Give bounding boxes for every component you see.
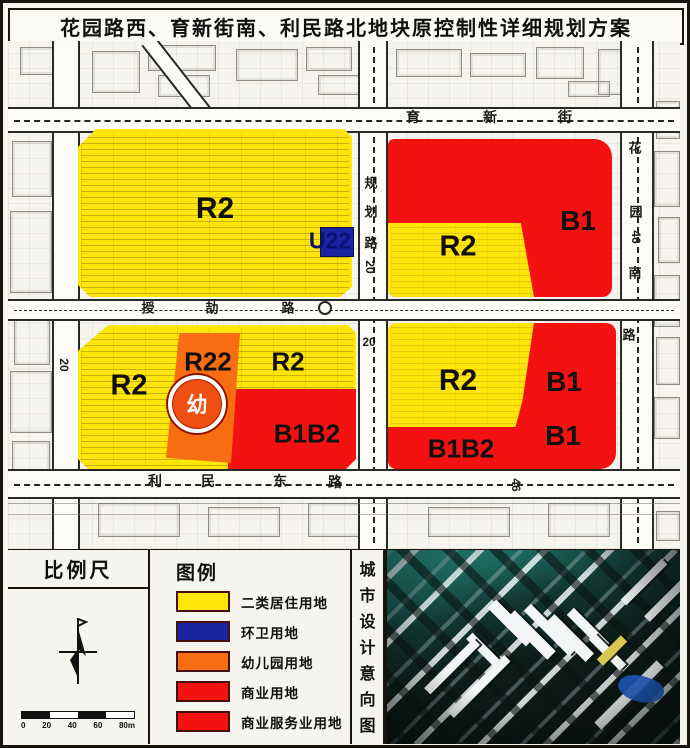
sidewalk-line (8, 514, 680, 515)
legend-swatch-commercial-service (176, 711, 230, 732)
sketch-building (548, 503, 610, 537)
sketch-building (12, 141, 52, 197)
sketch-building (656, 511, 680, 541)
sketch-building (654, 397, 680, 439)
scale-tick: 60 (93, 721, 102, 730)
caption-char: 向 (359, 688, 375, 714)
sketch-building (306, 47, 352, 71)
legend-item: 二类居住用地 (176, 591, 350, 612)
road-char: 路 (364, 233, 377, 252)
road-char: 规 (364, 173, 377, 192)
parcel-label-r2-nw: R2 (196, 192, 234, 226)
legend-label: 商业用地 (241, 682, 299, 702)
legend-swatch-commercial (176, 681, 230, 702)
legend-item: 商业服务业用地 (176, 711, 350, 732)
legend-title: 图例 (176, 558, 350, 585)
sketch-building (236, 49, 298, 81)
parcel-label-r22: R22 (184, 347, 232, 378)
road-width-label: 20 (362, 335, 375, 349)
road-char: 路 (328, 472, 342, 492)
road-char: 路 (281, 298, 294, 317)
parcel-label-r2-ne: R2 (439, 231, 476, 264)
sketch-building (10, 211, 52, 293)
legend-label: 二类居住用地 (241, 592, 328, 612)
plan-map: 幼 R2 U22 R2 B1 R2 R22 R2 B1B2 R2 B1 B1 B… (8, 41, 680, 551)
parcel-label-r2-se: R2 (439, 364, 477, 398)
limin-east-road (8, 469, 680, 499)
caption-char: 城 (359, 558, 375, 584)
road-char: 新 (483, 107, 497, 127)
road-char: 南 (628, 263, 641, 282)
sidewalk-line (8, 503, 680, 504)
scale-tick: 20 (42, 721, 51, 730)
legend-label: 商业服务业用地 (241, 712, 343, 732)
parcel-label-u22: U22 (309, 228, 351, 255)
plan-sheet: 花园路西、育新街南、利民路北地块原控制性详细规划方案 (0, 0, 690, 748)
sketch-building (656, 337, 680, 385)
legend-item: 商业用地 (176, 681, 350, 702)
caption-char: 计 (359, 636, 375, 662)
road-char: 育 (406, 107, 420, 127)
kindergarten-badge: 幼 (168, 375, 226, 433)
scale-panel-header: 比例尺 (8, 550, 148, 589)
road-char: 花 (628, 138, 641, 157)
road-width-label: 46 (509, 478, 523, 491)
page-title: 花园路西、育新街南、利民路北地块原控制性详细规划方案 (60, 12, 632, 41)
road-centerline (14, 120, 674, 122)
sketch-building (654, 151, 680, 207)
road-char: 路 (622, 325, 635, 344)
road-char: 劼 (205, 298, 218, 317)
road-char: 授 (141, 298, 154, 317)
caption-char: 意 (359, 662, 375, 688)
scale-tick: 80m (119, 721, 135, 730)
sketch-building (536, 47, 584, 79)
sketch-building (10, 371, 52, 433)
legend-swatch-kindergarten (176, 651, 230, 672)
scale-bar-ticks: 0 20 40 60 80m (21, 721, 135, 730)
scale-panel-title: 比例尺 (44, 554, 113, 583)
parcel-label-b1-ne: B1 (560, 205, 596, 237)
sheet-title-bar: 花园路西、育新街南、利民路北地块原控制性详细规划方案 (8, 8, 684, 45)
caption-char: 图 (359, 714, 375, 740)
scale-tick: 40 (68, 721, 77, 730)
road-width-label: 20 (57, 358, 71, 371)
parcel-label-b1-se-top: B1 (546, 366, 582, 398)
parcel-label-b1b2-se: B1B2 (428, 434, 494, 465)
road-char: 民 (201, 471, 215, 491)
road-char: 街 (558, 107, 572, 127)
road-char: 东 (273, 471, 287, 491)
parcel-label-b1-se-bottom: B1 (545, 420, 581, 452)
scale-bar: 0 20 40 60 80m (21, 711, 135, 730)
road-centerline (14, 484, 674, 486)
compass-area (8, 589, 148, 711)
scale-bar-segments (21, 711, 135, 719)
legend-item: 幼儿园用地 (176, 651, 350, 672)
north-compass-icon (55, 612, 101, 688)
parcel-label-b1b2-sw: B1B2 (274, 419, 340, 450)
sketch-building (470, 53, 526, 77)
road-width-label: 46 (629, 230, 643, 243)
sketch-building (658, 217, 680, 263)
sketch-building (428, 507, 510, 537)
legend-swatch-sanitation (176, 621, 230, 642)
road-char: 划 (364, 202, 377, 221)
middle-road (8, 299, 680, 321)
rendering-vignette (387, 550, 680, 744)
legend-swatch-residential (176, 591, 230, 612)
urban-design-rendering (385, 550, 680, 744)
sketch-building (98, 503, 180, 537)
caption-char: 设 (359, 610, 375, 636)
sketch-building (208, 507, 280, 537)
road-char: 园 (629, 202, 642, 221)
road-node-ring (318, 301, 332, 315)
sheet-footer: 比例尺 0 20 40 60 80m (8, 550, 680, 744)
road-centerline (14, 310, 674, 311)
parcel-label-r2-sw-right: R2 (271, 347, 304, 378)
legend-item: 环卫用地 (176, 621, 350, 642)
design-intent-caption: 城 市 设 计 意 向 图 (352, 550, 385, 744)
caption-char: 市 (359, 584, 375, 610)
road-char: 利 (148, 471, 162, 491)
sketch-building (92, 51, 140, 93)
road-width-label: 20 (363, 260, 377, 273)
parcel-label-r2-sw-left: R2 (110, 370, 147, 403)
legend-label: 环卫用地 (241, 622, 299, 642)
legend-label: 幼儿园用地 (241, 652, 314, 672)
kindergarten-label: 幼 (187, 389, 208, 419)
sketch-building (396, 49, 462, 77)
scale-panel: 比例尺 0 20 40 60 80m (8, 550, 150, 744)
legend-panel: 图例 二类居住用地 环卫用地 幼儿园用地 商业用地 商业服务业用地 (150, 550, 352, 744)
scale-tick: 0 (21, 721, 25, 730)
